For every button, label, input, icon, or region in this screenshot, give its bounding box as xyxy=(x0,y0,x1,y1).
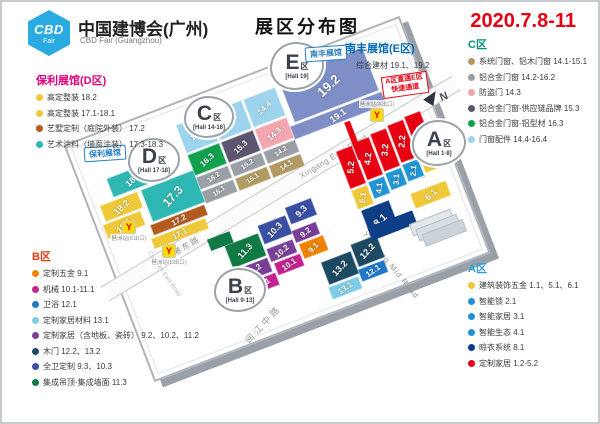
legend-item-label: 智能生态 4.1 xyxy=(479,327,524,338)
legend-item-label: 防盗门 14.3 xyxy=(479,87,521,98)
legend-item: 定制家居（含地板、瓷砖） 9.2、10.2、11.2 xyxy=(32,330,199,341)
legend-item-label: 艺术涂料（墙面涂装） 17.3-18.3 xyxy=(47,139,163,150)
hall-number-label: 9.1 xyxy=(307,240,321,254)
hall-number-label: 17.3 xyxy=(160,183,186,210)
hall-number-label: 16.2 xyxy=(207,171,222,185)
legend-item-label: 全卫定制 9.3、10.3 xyxy=(43,361,112,372)
cbd-fair-logo: CBD Fair xyxy=(28,10,70,56)
hall-9-3: 9.3 xyxy=(285,198,318,225)
hall-number-label: 18.2 xyxy=(112,197,132,216)
legend-item: 高定整装 17.1-18.1 xyxy=(36,108,163,119)
metro-exit-marker: Y 琶洲站(C出口) xyxy=(94,220,164,242)
legend-color-dot xyxy=(468,120,475,127)
hall-number-label: 3.2 xyxy=(380,143,391,156)
metro-exit-label: 琶洲站(C出口) xyxy=(110,234,147,242)
area-qu: 区 xyxy=(158,157,166,165)
legend-color-dot xyxy=(468,329,475,336)
compass-arrow-icon xyxy=(423,88,441,106)
legend-item: 建筑装饰五金 1.1、5.1、6.1 xyxy=(468,280,579,291)
legend-item-label: 卫浴 12.1 xyxy=(43,299,77,310)
hall-number-label: 14.3 xyxy=(266,125,284,142)
area-hall-range: [Hall 9-13] xyxy=(226,298,255,304)
area-letter: C xyxy=(197,103,212,124)
legend-item-label: 高定整装 18.2 xyxy=(47,92,97,103)
compass: N xyxy=(426,90,448,104)
legend-item-label: 晾衣系统 8.1 xyxy=(479,342,524,353)
hall-number-label: 4.2 xyxy=(363,152,374,165)
page-title: 展区分布图 xyxy=(255,13,360,39)
area-qu: 区 xyxy=(244,287,252,295)
metro-icon: Y xyxy=(370,108,384,122)
legend-color-dot xyxy=(36,125,43,132)
hall-number-label: 12.2 xyxy=(358,241,377,261)
legend-item: 全卫定制 9.3、10.3 xyxy=(32,361,199,372)
legend-nanfeng-e: 南丰展馆(E区) 综合建材 19.1、19.2 xyxy=(345,40,429,76)
area-hall-range: [Hall 17-18] xyxy=(138,168,170,174)
venue-tag-nanfeng: 南丰展馆 xyxy=(305,45,348,63)
legend-item-label: 定制家居材料 13.1 xyxy=(43,315,109,326)
legend-item: 定制家居材料 13.1 xyxy=(32,315,199,326)
legend-item-label: 定制家居（含地板、瓷砖） 9.2、10.2、11.2 xyxy=(43,330,199,341)
legend-item-label: 艺墅定制（庭院外装） 17.2 xyxy=(47,123,145,134)
legend-item: 智能生态 4.1 xyxy=(468,327,579,338)
legend-item-label: 智能家居 3.1 xyxy=(479,311,524,322)
legend-area-a: A区 建筑装饰五金 1.1、5.1、6.1智能锁 2.1智能家居 3.1智能生态… xyxy=(468,260,579,373)
legend-item: 木门 12.2、13.2 xyxy=(32,346,199,357)
legend-item: 高定整装 18.2 xyxy=(36,92,163,103)
legend-color-dot xyxy=(32,301,39,308)
legend-item-label: 铝合金门窗-供应链品牌 15.3 xyxy=(479,103,579,114)
legend-item: 艺术涂料（墙面涂装） 17.3-18.3 xyxy=(36,139,163,150)
legend-item-label: 定制五金 9.1 xyxy=(43,268,88,279)
hall-number-label: 5.1 xyxy=(358,191,368,203)
legend-item: 铝合金门窗-铝型材 16.3 xyxy=(468,118,587,129)
legend-color-dot xyxy=(36,110,43,117)
hall-number-label: 14.4 xyxy=(256,99,274,116)
legend-item-label: 门窗配件 14.4-16.4 xyxy=(479,134,547,145)
legend-color-dot xyxy=(36,141,43,148)
hall-number-label: 16.3 xyxy=(198,151,216,168)
hall-number-label: 4.1 xyxy=(374,182,384,194)
logo-subtext: Fair xyxy=(43,38,55,45)
legend-title: B区 xyxy=(32,248,199,264)
legend-color-dot xyxy=(468,282,475,289)
legend-poly-d: 保利展馆(D区) 高定整装 18.2高定整装 17.1-18.1艺墅定制（庭院外… xyxy=(36,72,163,154)
legend-color-dot xyxy=(32,379,39,386)
legend-item: 集成吊顶·集成墙面 11.3 xyxy=(32,377,199,388)
area-badge-a: A区 [Hall 1-8] xyxy=(412,120,466,166)
legend-color-dot xyxy=(468,344,475,351)
metro-exit-label: 琶洲站(A出口) xyxy=(359,100,396,108)
area-hall-range: [Hall 1-8] xyxy=(426,151,451,157)
area-letter: A xyxy=(427,129,442,150)
hall-number-label: 2.1 xyxy=(408,164,418,176)
exhibition-map-page: CBD Fair 中国建博会(广州) CBD Fair (Guangzhou) … xyxy=(0,0,600,424)
hall-number-label: 6.1 xyxy=(423,187,439,203)
legend-color-dot xyxy=(468,360,475,367)
hall-number-label: 2.2 xyxy=(397,135,408,148)
legend-title: C区 xyxy=(468,36,587,52)
legend-item-label: 智能锁 2.1 xyxy=(479,296,516,307)
area-hall-range: [Hall 19] xyxy=(285,74,308,80)
metro-icon: Y xyxy=(122,220,136,234)
area-qu: 区 xyxy=(443,140,451,148)
hall-number-label: 12.1 xyxy=(364,263,382,279)
hall-number-label: 16.1 xyxy=(212,185,227,199)
legend-color-dot xyxy=(468,298,475,305)
legend-item: 综合建材 19.1、19.2 xyxy=(345,60,429,71)
legend-color-dot xyxy=(32,363,39,370)
area-hall-range: [Hall 14-16] xyxy=(193,125,225,131)
hall-number-label: 13.1 xyxy=(336,280,354,296)
legend-color-dot xyxy=(32,332,39,339)
legend-item: 晾衣系统 8.1 xyxy=(468,342,579,353)
logo-text: CBD xyxy=(34,22,64,37)
legend-item: 智能锁 2.1 xyxy=(468,296,579,307)
hall-number-label: 15.3 xyxy=(232,138,250,155)
hall-number-label: 15.1 xyxy=(246,172,261,186)
hall-6-1: 6.1 xyxy=(410,180,451,209)
legend-area-b: B区 定制五金 9.1机械 10.1-11.1卫浴 12.1定制家居材料 13.… xyxy=(32,248,199,392)
area-letter: B xyxy=(228,276,243,297)
legend-color-dot xyxy=(468,89,475,96)
legend-color-dot xyxy=(468,58,475,65)
legend-color-dot xyxy=(468,105,475,112)
hall-number-label: 14.2 xyxy=(274,145,289,159)
hall-number-label: 13.2 xyxy=(330,258,349,278)
legend-item: 卫浴 12.1 xyxy=(32,299,199,310)
legend-item-label: 机械 10.1-11.1 xyxy=(43,284,94,295)
area-letter: E xyxy=(285,52,299,73)
legend-item: 定制家居 1.2-5.2 xyxy=(468,358,579,369)
legend-title: 保利展馆(D区) xyxy=(36,72,163,88)
legend-color-dot xyxy=(32,270,39,277)
hall-number-label: 11.3 xyxy=(236,241,255,260)
legend-item: 铝合金门窗 14.2-16.2 xyxy=(468,72,587,83)
hall-number-label: 15.2 xyxy=(240,158,255,172)
legend-item: 系统门窗、铝木门窗 14.1-15.1 xyxy=(468,56,587,67)
hall-number-label: 9.2 xyxy=(299,225,313,239)
legend-item: 机械 10.1-11.1 xyxy=(32,284,199,295)
legend-color-dot xyxy=(468,313,475,320)
legend-color-dot xyxy=(468,74,475,81)
legend-item: 艺墅定制（庭院外装） 17.2 xyxy=(36,123,163,134)
legend-item: 防盗门 14.3 xyxy=(468,87,587,98)
metro-exit-marker: 琶洲站(A出口) Y xyxy=(342,100,412,122)
legend-item: 定制五金 9.1 xyxy=(32,268,199,279)
legend-color-dot xyxy=(32,348,39,355)
legend-item-label: 系统门窗、铝木门窗 14.1-15.1 xyxy=(479,56,587,67)
legend-item-label: 综合建材 19.1、19.2 xyxy=(356,60,429,71)
legend-item-label: 木门 12.2、13.2 xyxy=(43,346,100,357)
hall-number-label: 14.1 xyxy=(279,159,294,173)
hall-number-label: 9.3 xyxy=(293,203,309,219)
legend-color-dot xyxy=(468,136,475,143)
legend-item-label: 建筑装饰五金 1.1、5.1、6.1 xyxy=(479,280,579,291)
legend-item-label: 集成吊顶·集成墙面 11.3 xyxy=(43,377,127,388)
legend-color-dot xyxy=(32,286,39,293)
hall-number-label: 5.2 xyxy=(346,161,357,174)
legend-area-c: C区 系统门窗、铝木门窗 14.1-15.1铝合金门窗 14.2-16.2防盗门… xyxy=(468,36,587,149)
legend-color-dot xyxy=(32,317,39,324)
hall-number-label: 10.3 xyxy=(265,220,284,240)
brand-subtitle: CBD Fair (Guangzhou) xyxy=(80,36,162,45)
legend-item: 智能家居 3.1 xyxy=(468,311,579,322)
legend-item-label: 定制家居 1.2-5.2 xyxy=(479,358,538,369)
legend-title: A区 xyxy=(468,260,579,276)
hall-number-label: 10.1 xyxy=(280,256,298,272)
hall-number-label: 3.1 xyxy=(391,173,401,185)
legend-color-dot xyxy=(345,62,352,69)
area-qu: 区 xyxy=(301,63,309,71)
legend-title: 南丰展馆(E区) xyxy=(345,40,429,56)
legend-item-label: 铝合金门窗-铝型材 16.3 xyxy=(479,118,563,129)
legend-item-label: 铝合金门窗 14.2-16.2 xyxy=(479,72,555,83)
legend-item: 门窗配件 14.4-16.4 xyxy=(468,134,587,145)
legend-color-dot xyxy=(36,94,43,101)
area-qu: 区 xyxy=(213,114,221,122)
event-date: 2020.7.8-11 xyxy=(470,10,576,33)
legend-item: 铝合金门窗-供应链品牌 15.3 xyxy=(468,103,587,114)
legend-item-label: 高定整装 17.1-18.1 xyxy=(47,108,115,119)
